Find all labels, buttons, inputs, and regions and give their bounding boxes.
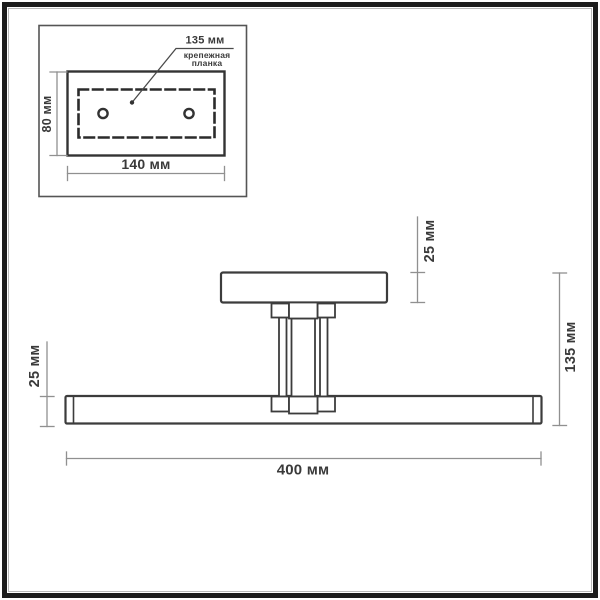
support-flange-bottom-left bbox=[272, 397, 290, 412]
support-block-bottom bbox=[289, 397, 318, 414]
inset-hole-pitch-label: 135 мм bbox=[186, 36, 225, 47]
support-column-shaft bbox=[292, 319, 316, 397]
mounting-plate-outline bbox=[68, 72, 225, 156]
overall-height-label: 135 мм bbox=[564, 322, 579, 373]
leader-dot bbox=[130, 100, 134, 104]
technical-drawing-page: 135 мм крепежная планка 80 мм 140 мм 25 … bbox=[0, 0, 600, 600]
screw-hole-left bbox=[98, 109, 107, 118]
support-flange-bottom-right bbox=[318, 397, 336, 412]
inset-plate-height-label: 80 мм bbox=[41, 95, 54, 132]
support-rod-left bbox=[279, 318, 287, 397]
canopy-height-label: 25 мм bbox=[423, 220, 438, 263]
support-rod-right bbox=[320, 318, 328, 397]
inset-plate-width-label: 140 мм bbox=[121, 157, 170, 171]
support-flange-top-right bbox=[318, 304, 336, 318]
inset-plate-name-label: крепежная планка bbox=[184, 51, 231, 67]
screw-hole-right bbox=[184, 109, 193, 118]
overall-width-label: 400 мм bbox=[277, 463, 330, 478]
canopy-plate bbox=[221, 273, 387, 303]
drawing-linework bbox=[0, 0, 600, 600]
support-column bbox=[272, 303, 336, 414]
support-flange-top-left bbox=[272, 304, 290, 318]
bar-height-label: 25 мм bbox=[28, 345, 43, 388]
support-block-top bbox=[289, 303, 318, 319]
fixture-front-view bbox=[66, 273, 542, 424]
